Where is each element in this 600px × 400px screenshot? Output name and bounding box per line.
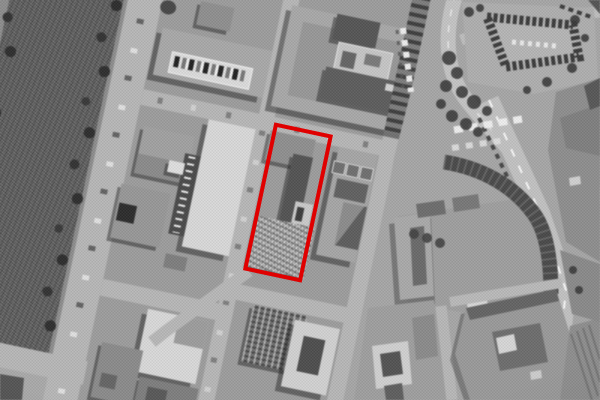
tree bbox=[440, 80, 452, 92]
tree bbox=[456, 86, 468, 98]
tree bbox=[422, 233, 432, 243]
tree bbox=[570, 15, 580, 25]
curb-parked-cars-light bbox=[403, 28, 411, 92]
tree bbox=[451, 67, 463, 79]
corner-dark-lot bbox=[0, 374, 24, 400]
dark-roof bbox=[384, 383, 404, 400]
tree bbox=[473, 127, 483, 137]
tree bbox=[409, 229, 419, 239]
tree bbox=[476, 4, 484, 12]
tree bbox=[460, 118, 472, 130]
tree bbox=[581, 34, 589, 42]
curb-parked-cars-dark bbox=[397, 30, 403, 88]
tree bbox=[467, 95, 481, 109]
tree bbox=[575, 286, 583, 294]
tree bbox=[482, 106, 492, 116]
connector-street bbox=[152, 271, 249, 342]
tree bbox=[523, 86, 531, 94]
building-roof bbox=[412, 314, 438, 360]
tree bbox=[569, 266, 577, 274]
tree bbox=[435, 238, 445, 248]
tree bbox=[542, 77, 552, 87]
tree bbox=[567, 63, 577, 73]
tree bbox=[442, 51, 456, 65]
inner-court bbox=[380, 351, 403, 377]
tree bbox=[464, 7, 474, 17]
aerial-photo bbox=[0, 0, 600, 400]
tree bbox=[436, 99, 446, 109]
tree bbox=[446, 110, 458, 122]
